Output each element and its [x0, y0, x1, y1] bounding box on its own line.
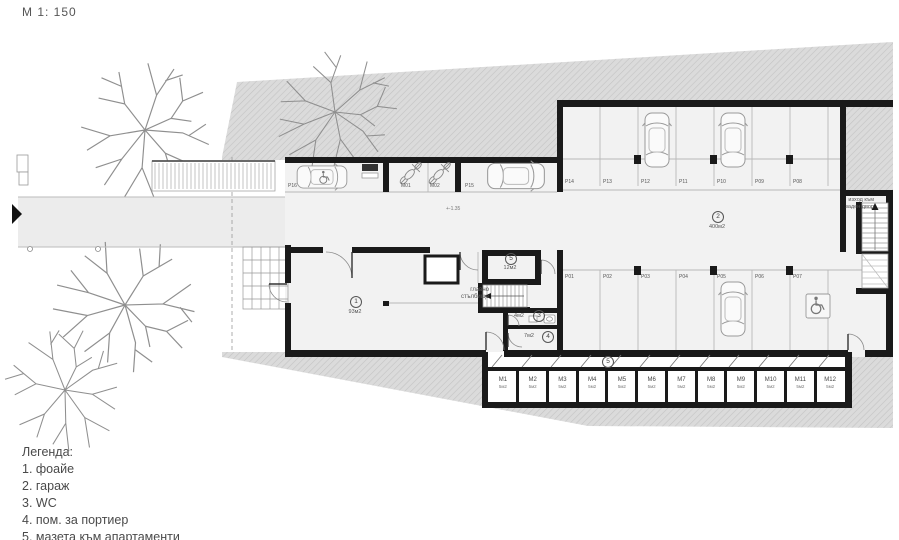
- scale-label: М 1: 150: [22, 5, 77, 19]
- car-icon-p12: [643, 113, 672, 167]
- car-icon-p10: [719, 113, 748, 167]
- cellar-unit-label: M2 5м2: [518, 377, 548, 390]
- cellar-number: M10: [756, 377, 786, 384]
- entrance-grate: [152, 161, 275, 191]
- cellar-unit-label: M6 5м2: [637, 377, 667, 390]
- cellar-area: 5м2: [696, 384, 726, 390]
- cellar-number: M1: [488, 377, 518, 384]
- room-number-cellar-room: 5: [505, 253, 517, 265]
- cellar-unit-label: M4 5м2: [577, 377, 607, 390]
- cellar-area: 5м2: [488, 384, 518, 390]
- cellar-area: 5м2: [667, 384, 697, 390]
- cellar-unit-label: M7 5м2: [667, 377, 697, 390]
- legend-title: Легенда:: [22, 444, 180, 461]
- toilet: [547, 317, 553, 321]
- parking-spot-label: P08: [790, 179, 828, 189]
- parking-spot-label: P10: [714, 179, 752, 189]
- parking-spot-label: P05: [714, 274, 752, 284]
- legend-item: 5. мазета към апартаменти: [22, 529, 180, 540]
- parking-spot-label: P02: [600, 274, 638, 284]
- room-number-wc: 3: [533, 310, 545, 322]
- cellar-unit-label: M3 5м2: [548, 377, 578, 390]
- parking-spot-label: P04: [676, 274, 714, 284]
- cellar-unit-label: M1 5м2: [488, 377, 518, 390]
- cellar-area: 5м2: [548, 384, 578, 390]
- cellar-area: 5м2: [726, 384, 756, 390]
- legend-item: 1. фоайе: [22, 461, 180, 478]
- cellar-unit-label: M11 5м2: [786, 377, 816, 390]
- legend-item: 2. гараж: [22, 478, 180, 495]
- car-icon-p05: [719, 282, 748, 336]
- cellar-area: 5м2: [518, 384, 548, 390]
- cellar-number: M11: [786, 377, 816, 384]
- cellar-number: M6: [637, 377, 667, 384]
- parking-row-middle: P01P02P03P04P05P06P07: [562, 274, 828, 284]
- legend-item: 4. пом. за портиер: [22, 512, 180, 529]
- parking-spot-label: P11: [676, 179, 714, 189]
- cellar-number: M8: [696, 377, 726, 384]
- parking-row-top: P14P13P12P11P10P09P08: [562, 179, 828, 189]
- floor-plan-canvas: М 1: 150 +-1.35 главно стълбище изход къ…: [0, 0, 899, 540]
- main-staircase: [483, 285, 527, 307]
- cellar-number: M5: [607, 377, 637, 384]
- legend-item: 3. WC: [22, 495, 180, 512]
- room-number-cellar-corridor: 5: [602, 356, 614, 368]
- parking-spot-label: P14: [562, 179, 600, 189]
- cellar-area: 5м2: [756, 384, 786, 390]
- shaft-room: [425, 256, 458, 283]
- cellar-area: 5м2: [815, 384, 845, 390]
- parking-spot-label: P09: [752, 179, 790, 189]
- cellar-unit-label: M5 5м2: [607, 377, 637, 390]
- cellar-number: M4: [577, 377, 607, 384]
- room-area-lobby: 93м2: [343, 309, 367, 315]
- cabinet: [362, 164, 378, 171]
- legend: Легенда: 1. фоайе2. гараж3. WC4. пом. за…: [22, 444, 180, 540]
- cellar-number: M2: [518, 377, 548, 384]
- cellar-row: M1 5м2 M2 5м2 M3 5м2 M4 5м2 M5 5м2 M6 5м…: [488, 377, 845, 390]
- parking-spot-label: P01: [562, 274, 600, 284]
- parking-spot-label: P07: [790, 274, 828, 284]
- rear-exit-staircase: [862, 203, 888, 288]
- utility-box: [19, 172, 28, 185]
- parking-spot-label: P06: [752, 274, 790, 284]
- parking-spot-label: P12: [638, 179, 676, 189]
- cellar-number: M7: [667, 377, 697, 384]
- room-number-porter: 4: [542, 331, 554, 343]
- cellar-area: 5м2: [577, 384, 607, 390]
- cellar-area: 5м2: [607, 384, 637, 390]
- cellar-unit-label: M9 5м2: [726, 377, 756, 390]
- cellar-number: M9: [726, 377, 756, 384]
- room-number-lobby: 1: [350, 296, 362, 308]
- cellar-area: 5м2: [637, 384, 667, 390]
- floor-level-mark: +-1.35: [446, 206, 460, 212]
- main-stairs-label: главно стълбище: [437, 287, 489, 301]
- parking-spot-label-p15: P15: [465, 183, 474, 189]
- cabinet: [362, 173, 378, 178]
- parking-spot-label-p16: P16: [288, 183, 297, 189]
- bollard: [28, 247, 33, 252]
- parking-spot-label-m02: M02: [430, 183, 440, 189]
- cellar-number: M12: [815, 377, 845, 384]
- room-area-porter: 7м2: [519, 333, 539, 339]
- car-icon-p15: [488, 161, 545, 191]
- legend-items: 1. фоайе2. гараж3. WC4. пом. за портиер5…: [22, 461, 180, 540]
- parking-spot-label-m01: M01: [401, 183, 411, 189]
- parking-spot-label: P03: [638, 274, 676, 284]
- utility-box: [17, 155, 28, 172]
- room-area-cellar-room: 12м2: [498, 265, 522, 271]
- cellar-unit-label: M8 5м2: [696, 377, 726, 390]
- room-area-wc: 4м2: [509, 313, 529, 319]
- room-number-garage: 2: [712, 211, 724, 223]
- cellar-number: M3: [548, 377, 578, 384]
- parking-spot-label: P13: [600, 179, 638, 189]
- cellar-unit-label: M12 5м2: [815, 377, 845, 390]
- cellar-area: 5м2: [786, 384, 816, 390]
- rear-exit-label: изход към заден двор: [822, 197, 874, 210]
- bollard: [96, 247, 101, 252]
- room-area-garage: 400м2: [703, 224, 731, 230]
- cellar-unit-label: M10 5м2: [756, 377, 786, 390]
